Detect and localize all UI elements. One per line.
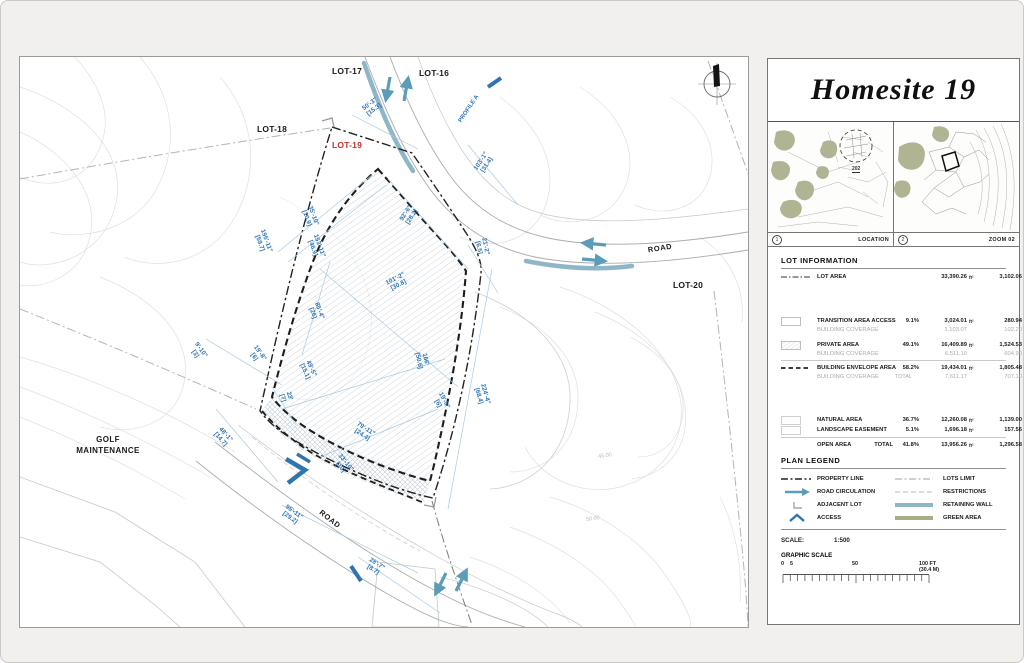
graphic-scale-bar: 0 5 50 100 FT(30.4 M)	[781, 561, 949, 587]
open-area-total-row: OPEN AREATOTAL 41.8% 13,956.26 ft² 1,296…	[781, 440, 1006, 450]
transition-coverage-row: BUILDING COVERAGE 1,103.07 102.20	[781, 326, 1006, 334]
scale-value: 1:500	[834, 537, 850, 544]
lot-boundary-extension	[432, 501, 472, 625]
natural-area-row: NATURAL AREA 36.7% 12,260.08 ft² 1,139.0…	[781, 415, 1006, 425]
lot-20-label: LOT-20	[673, 280, 703, 290]
landscape-easement-row: LANDSCAPE EASEMENT 5.1% 1,696.18 ft² 157…	[781, 425, 1006, 435]
transition-area-symbol	[781, 317, 801, 326]
private-area-symbol	[781, 341, 801, 350]
natural-area-symbol	[781, 416, 801, 425]
retaining-wall-symbol	[895, 502, 933, 508]
key-maps: 202 1 LOCATION	[768, 122, 1019, 247]
road-circulation-icon	[781, 488, 811, 496]
zoom-map	[894, 122, 1019, 232]
lots-limit-symbol	[895, 476, 933, 482]
plan-legend-header: PLAN LEGEND	[781, 456, 1006, 465]
scale-label: SCALE:	[781, 537, 804, 544]
lot-17-label: LOT-17	[332, 66, 362, 76]
map-ref-bubble: 1	[772, 235, 782, 245]
location-map-label: LOCATION	[858, 237, 889, 243]
lot-18-label: LOT-18	[257, 124, 287, 134]
legend-row: ROAD CIRCULATION RESTRICTIONS	[781, 485, 1006, 498]
transition-area-row: TRANSITION AREA ACCESS 9.1% 3,024.01 ft²…	[781, 316, 1006, 326]
access-icon	[781, 513, 811, 523]
golf-maintenance-label: GOLF MAINTENANCE	[76, 434, 140, 456]
golf-label-line1: GOLF	[96, 435, 120, 444]
location-map-strip: 1 LOCATION	[768, 232, 893, 246]
envelope-coverage-row: BUILDING COVERAGE TOTAL 7,611.17 707.10	[781, 373, 1006, 381]
building-envelope-symbol	[781, 365, 811, 371]
lot-callout-202: 202	[852, 166, 860, 173]
index-contours	[440, 292, 570, 627]
legend-row: PROPERTY LINE LOTS LIMIT	[781, 472, 1006, 485]
property-line-symbol	[781, 476, 811, 482]
lot-area-line-symbol	[781, 274, 811, 280]
landscape-easement-symbol	[781, 426, 801, 435]
map-ref-bubble: 2	[898, 235, 908, 245]
zoom-map-label: ZOOM 02	[989, 237, 1015, 243]
lot-19-label: LOT-19	[332, 140, 362, 150]
graphic-scale-label: GRAPHIC SCALE	[781, 552, 1006, 559]
legend-row: ACCESS GREEN AREA	[781, 511, 1006, 524]
north-arrow-icon	[698, 63, 736, 105]
private-area-row: PRIVATE AREA 49.1% 16,409.89 ft² 1,524.5…	[781, 340, 1006, 350]
lot-information-header: LOT INFORMATION	[781, 256, 1006, 265]
golf-label-line2: MAINTENANCE	[76, 446, 140, 455]
lot-information-section: LOT INFORMATION LOT AREA 33,390.26 ft² 3…	[768, 247, 1019, 587]
zoom-map-strip: 2 ZOOM 02	[894, 232, 1019, 246]
scale-row: SCALE: 1:500	[781, 537, 1006, 544]
info-panel: Homesite 19	[767, 58, 1020, 625]
private-coverage-row: BUILDING COVERAGE 6,511.10 604.90	[781, 350, 1006, 358]
access-symbol	[286, 454, 310, 483]
graphic-scale-tick-labels: 0 5 50 100 FT(30.4 M)	[781, 561, 949, 572]
adjacent-lot-symbol	[781, 500, 811, 510]
location-map-graphic	[768, 122, 893, 232]
site-plan-drawing	[20, 57, 748, 627]
zoom-map-cell: 2 ZOOM 02	[894, 122, 1019, 246]
lot-area-row: LOT AREA 33,390.26 ft² 3,102.06 m²	[781, 272, 1006, 282]
location-map-cell: 202 1 LOCATION	[768, 122, 894, 246]
plan-sheet: LOT-17 LOT-16 LOT-18 LOT-19 LOT-20 ROAD …	[19, 56, 749, 628]
zoom-map-graphic	[894, 122, 1019, 232]
page-title: Homesite 19	[811, 73, 976, 107]
legend-row: ADJACENT LOT RETAINING WALL	[781, 498, 1006, 511]
sheet-background: LOT-17 LOT-16 LOT-18 LOT-19 LOT-20 ROAD …	[0, 0, 1024, 663]
green-area-symbol	[895, 515, 933, 521]
graphic-scale-ruler	[781, 573, 941, 585]
lot-16-label: LOT-16	[419, 68, 449, 78]
location-map: 202	[768, 122, 893, 232]
restrictions-symbol	[895, 489, 933, 495]
building-envelope-row: BUILDING ENVELOPE AREA 58.2% 19,434.01 f…	[781, 363, 1006, 373]
title-block: Homesite 19	[768, 59, 1019, 122]
